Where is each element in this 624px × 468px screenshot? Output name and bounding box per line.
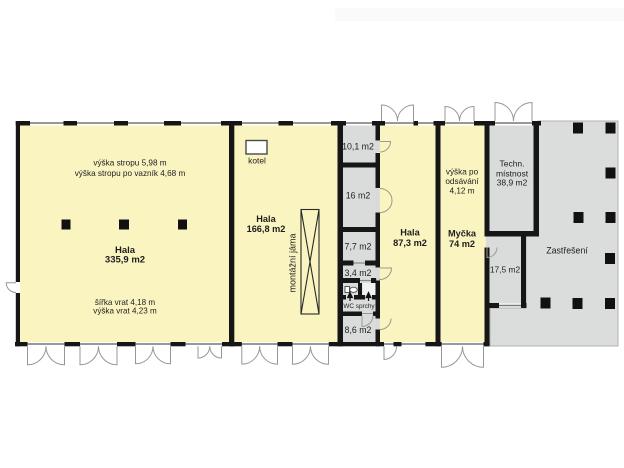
svg-text:montážní jáma: montážní jáma [288,233,298,292]
svg-text:7,7 m2: 7,7 m2 [345,242,372,252]
svg-text:16 m2: 16 m2 [346,191,371,201]
svg-text:Hala: Hala [256,214,276,224]
svg-text:výška stropu 5,98 m: výška stropu 5,98 m [93,159,166,168]
svg-text:výška po: výška po [446,168,479,177]
svg-text:Techn.: Techn. [499,159,524,169]
svg-text:Zastřešení: Zastřešení [546,246,588,256]
svg-text:4,12 m: 4,12 m [449,187,474,196]
svg-text:Hala: Hala [400,228,420,238]
svg-text:Myčka: Myčka [448,229,477,239]
svg-text:38,9 m2: 38,9 m2 [497,178,528,188]
svg-text:335,9 m2: 335,9 m2 [105,255,145,266]
svg-text:WC sprchy: WC sprchy [343,303,375,310]
svg-text:výška vrat 4,23 m: výška vrat 4,23 m [93,307,157,316]
svg-text:17,5 m2: 17,5 m2 [490,265,521,275]
svg-text:10,1 m2: 10,1 m2 [342,142,374,152]
svg-text:3,4 m2: 3,4 m2 [345,268,372,278]
svg-text:166,8 m2: 166,8 m2 [247,224,286,234]
svg-text:74 m2: 74 m2 [449,239,475,249]
svg-text:odsávání: odsávání [445,177,479,186]
svg-text:kotel: kotel [248,156,266,166]
svg-text:87,3 m2: 87,3 m2 [393,238,427,248]
svg-text:8,6 m2: 8,6 m2 [345,325,372,335]
svg-text:výška stropu po vazník 4,68 m: výška stropu po vazník 4,68 m [75,169,186,178]
